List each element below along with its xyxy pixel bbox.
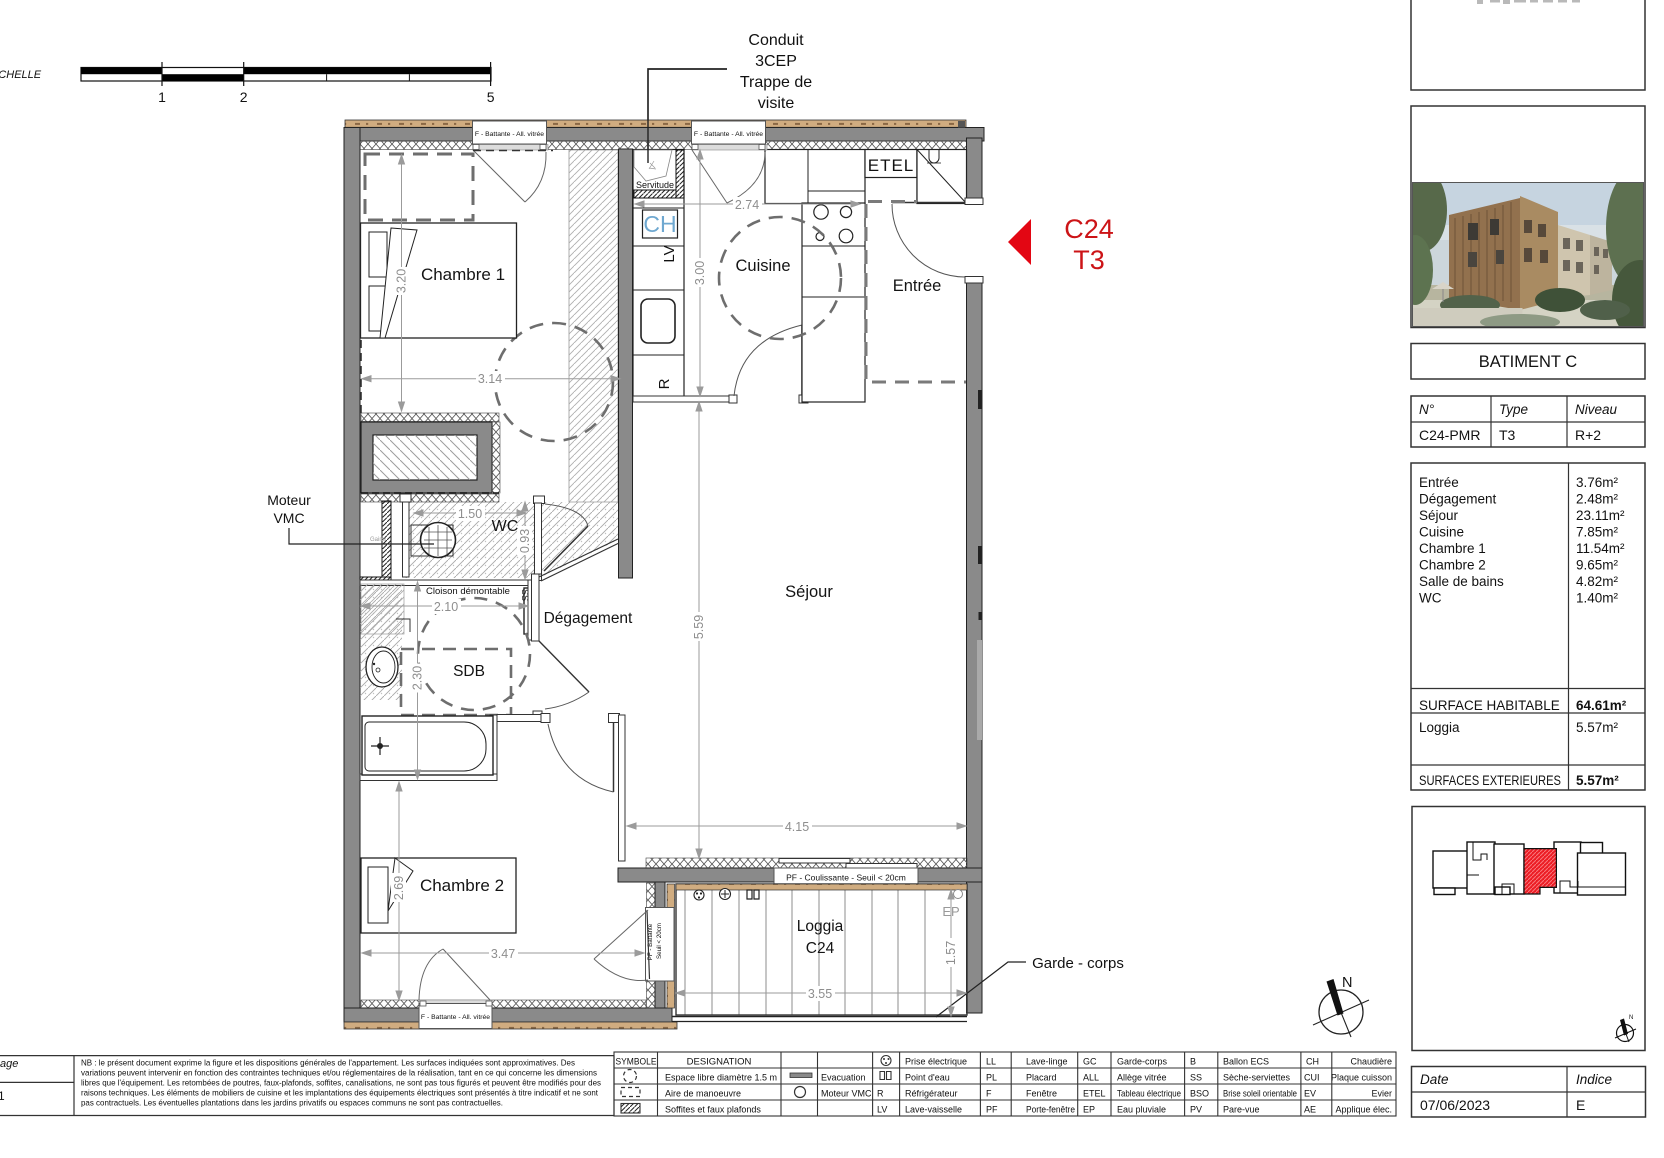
svg-text:F: F — [986, 1089, 992, 1099]
svg-text:5.57m²: 5.57m² — [1576, 720, 1619, 735]
svg-text:SURFACES EXTERIEURES: SURFACES EXTERIEURES — [1419, 773, 1561, 788]
svg-text:Garde-corps: Garde-corps — [1117, 1057, 1168, 1067]
svg-text:AE: AE — [1304, 1105, 1316, 1115]
svg-text:SYMBOLE: SYMBOLE — [616, 1057, 657, 1068]
svg-text:N°: N° — [1419, 402, 1435, 417]
svg-text:Cloison démontable: Cloison démontable — [426, 586, 510, 597]
svg-text:Séjour: Séjour — [785, 583, 833, 601]
svg-text:BATIMENT C: BATIMENT C — [1479, 353, 1577, 371]
svg-text:2.69: 2.69 — [392, 876, 406, 900]
svg-text:Pare-vue: Pare-vue — [1223, 1105, 1260, 1115]
svg-text:GC: GC — [1083, 1057, 1097, 1067]
svg-text:WC: WC — [1419, 591, 1442, 606]
svg-text:1.40m²: 1.40m² — [1576, 591, 1619, 606]
svg-text:Cuisine: Cuisine — [735, 257, 790, 275]
svg-text:DESIGNATION: DESIGNATION — [687, 1057, 752, 1068]
svg-text:B: B — [1190, 1057, 1196, 1067]
svg-text:F - Battante - All. vitrée: F - Battante - All. vitrée — [694, 131, 763, 138]
svg-text:LV: LV — [877, 1105, 887, 1115]
svg-text:Evacuation: Evacuation — [821, 1073, 866, 1083]
svg-text:Fenêtre: Fenêtre — [1026, 1089, 1057, 1099]
svg-text:Brise soleil orientable: Brise soleil orientable — [1223, 1089, 1297, 1099]
svg-text:3.20: 3.20 — [395, 269, 409, 293]
svg-text:11.54m²: 11.54m² — [1576, 541, 1625, 556]
svg-text:Chambre 2: Chambre 2 — [420, 876, 504, 895]
svg-text:Ballon ECS: Ballon ECS — [1223, 1057, 1269, 1067]
svg-text:5: 5 — [487, 89, 495, 105]
svg-text:2.74: 2.74 — [735, 198, 759, 212]
svg-text:Garde - corps: Garde - corps — [1032, 955, 1124, 972]
svg-text:3.55: 3.55 — [808, 987, 832, 1001]
svg-text:0.93: 0.93 — [518, 529, 532, 553]
svg-text:5.59: 5.59 — [692, 615, 706, 639]
svg-text:7.85m²: 7.85m² — [1576, 525, 1619, 540]
svg-text:2: 2 — [240, 89, 248, 105]
svg-text:Chambre 1: Chambre 1 — [421, 265, 505, 284]
svg-text:Dégagement: Dégagement — [544, 610, 633, 627]
svg-text:T3: T3 — [1073, 245, 1105, 275]
svg-text:R: R — [656, 378, 673, 389]
svg-text:ETEL: ETEL — [868, 156, 915, 175]
svg-text:Séjour: Séjour — [1419, 508, 1459, 523]
svg-text:2.30: 2.30 — [411, 666, 425, 690]
svg-text:Loggia: Loggia — [1419, 720, 1460, 735]
svg-text:Salle de bains: Salle de bains — [1419, 574, 1504, 589]
svg-text:C24: C24 — [806, 940, 835, 957]
svg-text:T3: T3 — [1499, 427, 1516, 443]
svg-text:3.76m²: 3.76m² — [1576, 475, 1619, 490]
svg-text:Tableau électrique: Tableau électrique — [1117, 1089, 1181, 1099]
svg-text:23.11m²: 23.11m² — [1576, 508, 1625, 523]
svg-text:Chambre 1: Chambre 1 — [1419, 541, 1486, 556]
svg-text:2.10: 2.10 — [434, 600, 458, 614]
svg-text:Moteur: Moteur — [267, 492, 311, 508]
svg-text:3.14: 3.14 — [478, 372, 502, 386]
svg-text:9.65m²: 9.65m² — [1576, 558, 1619, 573]
svg-text:N: N — [1629, 1015, 1633, 1021]
svg-text:4.15: 4.15 — [785, 820, 809, 834]
svg-text:F - Battante - All. vitrée: F - Battante - All. vitrée — [475, 131, 544, 138]
svg-text:Espace libre diamètre 1.5 m: Espace libre diamètre 1.5 m — [665, 1073, 777, 1083]
svg-text:F - Battante - All. vitrée: F - Battante - All. vitrée — [421, 1014, 490, 1021]
svg-text:Chambre 2: Chambre 2 — [1419, 558, 1486, 573]
svg-text:SURFACE HABITABLE: SURFACE HABITABLE — [1419, 698, 1560, 713]
svg-text:Niveau: Niveau — [1575, 402, 1618, 417]
svg-text:visite: visite — [758, 95, 795, 112]
svg-text:ALL: ALL — [1083, 1073, 1099, 1083]
svg-text:C24-PMR: C24-PMR — [1419, 427, 1480, 443]
svg-text:Porte-fenêtre: Porte-fenêtre — [1026, 1105, 1075, 1115]
svg-text:libres que l'équipement. Les r: libres que l'équipement. Les retombées d… — [81, 1078, 601, 1088]
svg-text:3.00: 3.00 — [693, 261, 707, 285]
svg-text:N: N — [1342, 975, 1352, 991]
svg-text:E: E — [1576, 1097, 1585, 1113]
svg-text:pas contractuels. Les éventuel: pas contractuels. Les éventuelles planta… — [81, 1098, 503, 1108]
svg-text:raisons techniques. Les élémen: raisons techniques. Les éléments de mobi… — [81, 1088, 599, 1098]
svg-text:1.57: 1.57 — [944, 941, 958, 965]
svg-text:Applique élec.: Applique élec. — [1335, 1105, 1392, 1115]
svg-text:1: 1 — [0, 1089, 5, 1103]
svg-text:Entrée: Entrée — [893, 277, 942, 295]
svg-text:WC: WC — [492, 518, 519, 535]
svg-text:Plaque cuisson: Plaque cuisson — [1331, 1073, 1392, 1083]
svg-text:5.57m²: 5.57m² — [1576, 773, 1619, 788]
svg-text:Seuil < 20cm: Seuil < 20cm — [656, 923, 663, 959]
svg-text:age: age — [0, 1058, 18, 1070]
svg-text:CH: CH — [643, 211, 676, 237]
svg-text:PF: PF — [986, 1105, 998, 1115]
svg-text:CH: CH — [1306, 1057, 1319, 1067]
svg-text:1: 1 — [158, 89, 166, 105]
svg-text:Eau pluviale: Eau pluviale — [1117, 1105, 1166, 1115]
svg-text:Prise électrique: Prise électrique — [905, 1057, 967, 1067]
svg-text:64.61m²: 64.61m² — [1576, 698, 1627, 713]
svg-text:Aire de manoeuvre: Aire de manoeuvre — [665, 1089, 741, 1099]
svg-text:Allège vitrée: Allège vitrée — [1117, 1073, 1167, 1083]
svg-text:EP: EP — [1083, 1105, 1095, 1115]
svg-text:Gaine: Gaine — [370, 537, 387, 543]
svg-text:NB : le présent document expri: NB : le présent document exprime la figu… — [81, 1058, 575, 1068]
svg-text:EV: EV — [1304, 1089, 1316, 1099]
svg-text:SDB: SDB — [453, 663, 485, 680]
svg-text:ECHELLE: ECHELLE — [0, 69, 42, 81]
svg-text:ETEL: ETEL — [1083, 1089, 1106, 1099]
svg-text:Placard: Placard — [1026, 1073, 1057, 1083]
svg-text:BSO: BSO — [1190, 1089, 1209, 1099]
svg-text:Chaudière: Chaudière — [1350, 1057, 1392, 1067]
svg-text:LV: LV — [661, 245, 678, 262]
svg-text:CUI: CUI — [1304, 1073, 1320, 1083]
svg-text:PV: PV — [1190, 1105, 1202, 1115]
svg-text:PL: PL — [986, 1073, 997, 1083]
svg-text:Cuisine: Cuisine — [1419, 525, 1464, 540]
svg-text:Loggia: Loggia — [797, 918, 844, 935]
svg-text:Réfrigérateur: Réfrigérateur — [905, 1089, 958, 1099]
svg-text:Date: Date — [1420, 1072, 1449, 1087]
svg-text:R: R — [877, 1089, 884, 1099]
svg-text:Moteur VMC: Moteur VMC — [821, 1089, 872, 1099]
svg-text:variations peuvent intervenir: variations peuvent intervenir en fonctio… — [81, 1068, 597, 1078]
svg-text:Type: Type — [1499, 402, 1528, 417]
svg-text:Lave-linge: Lave-linge — [1026, 1057, 1068, 1067]
svg-text:Soffites et faux plafonds: Soffites et faux plafonds — [665, 1105, 761, 1115]
svg-text:PF - Coulissante - Seuil < 20c: PF - Coulissante - Seuil < 20cm — [786, 873, 906, 883]
svg-text:Point d'eau: Point d'eau — [905, 1073, 950, 1083]
svg-text:4.82m²: 4.82m² — [1576, 574, 1619, 589]
svg-text:3CEP: 3CEP — [755, 53, 797, 70]
svg-text:Conduit: Conduit — [748, 32, 804, 49]
svg-text:Trappe de: Trappe de — [740, 74, 812, 91]
svg-text:Lave-vaisselle: Lave-vaisselle — [905, 1105, 962, 1115]
svg-text:Entrée: Entrée — [1419, 475, 1459, 490]
svg-text:Evier: Evier — [1371, 1089, 1392, 1099]
svg-text:SS: SS — [1190, 1073, 1202, 1083]
svg-text:Servitude: Servitude — [636, 180, 674, 190]
svg-text:07/06/2023: 07/06/2023 — [1420, 1097, 1490, 1113]
svg-text:VMC: VMC — [273, 510, 304, 526]
svg-text:Indice: Indice — [1576, 1072, 1612, 1087]
svg-text:LL: LL — [986, 1057, 996, 1067]
svg-text:R+2: R+2 — [1575, 427, 1601, 443]
svg-text:C24: C24 — [1064, 214, 1114, 244]
svg-text:Dégagement: Dégagement — [1419, 492, 1497, 507]
svg-text:Sèche-serviettes: Sèche-serviettes — [1223, 1073, 1291, 1083]
svg-text:3.47: 3.47 — [491, 947, 515, 961]
svg-text:1.50: 1.50 — [458, 507, 482, 521]
svg-text:2.48m²: 2.48m² — [1576, 492, 1619, 507]
